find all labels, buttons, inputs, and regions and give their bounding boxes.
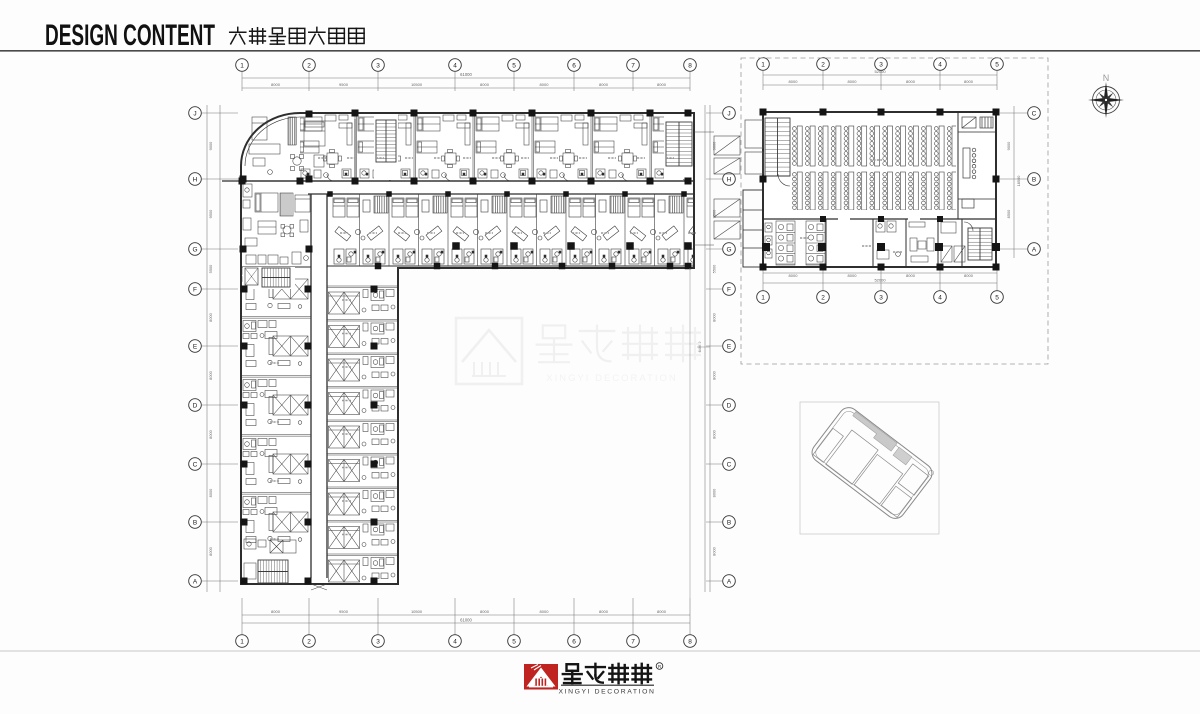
svg-text:2: 2: [821, 294, 825, 301]
svg-text:J: J: [727, 110, 730, 117]
svg-text:18500: 18500: [1016, 175, 1021, 187]
svg-text:E: E: [727, 343, 732, 350]
svg-text:8: 8: [688, 638, 692, 645]
svg-text:4: 4: [453, 62, 457, 69]
svg-text:8000: 8000: [848, 273, 858, 278]
svg-text:A: A: [1032, 246, 1037, 253]
svg-text:8000: 8000: [480, 609, 490, 614]
svg-text:3: 3: [879, 294, 883, 301]
svg-text:8000: 8000: [789, 79, 799, 84]
svg-text:E: E: [193, 343, 198, 350]
svg-text:7: 7: [631, 638, 635, 645]
svg-text:5: 5: [512, 62, 516, 69]
svg-text:4: 4: [453, 638, 457, 645]
svg-text:F: F: [727, 286, 731, 293]
svg-text:52000: 52000: [874, 69, 886, 74]
svg-text:XINGYI DECORATION: XINGYI DECORATION: [546, 373, 677, 384]
svg-text:D: D: [727, 402, 732, 409]
svg-text:8000: 8000: [712, 488, 717, 497]
svg-text:1: 1: [761, 61, 765, 68]
svg-text:8000: 8000: [712, 370, 717, 379]
svg-text:6: 6: [572, 638, 576, 645]
svg-text:52000: 52000: [874, 277, 886, 282]
svg-text:8000: 8000: [480, 82, 490, 87]
svg-text:B: B: [193, 519, 197, 526]
svg-text:3: 3: [879, 61, 883, 68]
svg-text:4: 4: [938, 294, 942, 301]
svg-text:B: B: [727, 519, 731, 526]
svg-text:6: 6: [572, 62, 576, 69]
svg-text:8000: 8000: [657, 609, 667, 614]
svg-text:8000: 8000: [540, 82, 550, 87]
svg-text:8000: 8000: [964, 79, 974, 84]
svg-text:8000: 8000: [599, 82, 609, 87]
svg-text:B: B: [1032, 176, 1036, 183]
svg-text:2: 2: [307, 638, 311, 645]
svg-text:8000: 8000: [848, 79, 858, 84]
svg-text:J: J: [193, 110, 196, 117]
svg-text:8000: 8000: [906, 79, 916, 84]
svg-text:D: D: [193, 402, 198, 409]
svg-text:C: C: [727, 461, 732, 468]
svg-text:8000: 8000: [906, 273, 916, 278]
svg-text:5: 5: [512, 638, 516, 645]
svg-text:A: A: [193, 578, 198, 585]
svg-text:C: C: [193, 461, 198, 468]
svg-text:8000: 8000: [540, 609, 550, 614]
svg-text:9500: 9500: [339, 82, 349, 87]
svg-text:H: H: [193, 176, 198, 183]
svg-text:8000: 8000: [208, 370, 213, 379]
svg-text:5: 5: [995, 294, 999, 301]
svg-text:4: 4: [938, 61, 942, 68]
svg-text:7: 7: [631, 62, 635, 69]
svg-text:8: 8: [688, 62, 692, 69]
svg-text:5500: 5500: [712, 264, 717, 273]
svg-text:2: 2: [307, 62, 311, 69]
svg-text:8000: 8000: [271, 609, 281, 614]
svg-text:8000: 8000: [208, 488, 213, 497]
svg-text:61000: 61000: [460, 618, 472, 623]
svg-text:8000: 8000: [657, 82, 667, 87]
svg-text:8000: 8000: [789, 273, 799, 278]
svg-text:8500: 8500: [1006, 209, 1011, 218]
svg-text:64000: 64000: [697, 341, 702, 353]
svg-text:XINGYI DECORATION: XINGYI DECORATION: [559, 689, 656, 696]
svg-text:3: 3: [376, 62, 380, 69]
svg-text:1: 1: [761, 294, 765, 301]
svg-text:G: G: [726, 246, 731, 253]
svg-text:9500: 9500: [339, 609, 349, 614]
svg-text:C: C: [1032, 110, 1037, 117]
svg-text:8000: 8000: [208, 546, 213, 555]
svg-text:G: G: [192, 246, 197, 253]
svg-text:8000: 8000: [712, 429, 717, 438]
svg-text:9000: 9000: [1006, 141, 1011, 150]
svg-text:2: 2: [821, 61, 825, 68]
svg-text:8000: 8000: [208, 312, 213, 321]
svg-text:8000: 8000: [599, 609, 609, 614]
svg-text:F: F: [193, 286, 197, 293]
svg-text:61000: 61000: [460, 72, 472, 77]
svg-text:8000: 8000: [271, 82, 281, 87]
svg-text:8000: 8000: [712, 312, 717, 321]
svg-text:5500: 5500: [208, 264, 213, 273]
svg-text:10500: 10500: [411, 609, 423, 614]
svg-text:N: N: [1103, 73, 1110, 83]
svg-text:5: 5: [995, 61, 999, 68]
svg-text:3: 3: [376, 638, 380, 645]
svg-text:8000: 8000: [208, 429, 213, 438]
svg-text:1: 1: [240, 62, 244, 69]
svg-text:10500: 10500: [411, 82, 423, 87]
svg-text:A: A: [727, 578, 732, 585]
svg-text:1: 1: [240, 638, 244, 645]
svg-text:9500: 9500: [208, 209, 213, 218]
svg-text:8000: 8000: [712, 546, 717, 555]
svg-text:9000: 9000: [208, 141, 213, 150]
svg-text:8000: 8000: [964, 273, 974, 278]
svg-text:DESIGN CONTENT: DESIGN CONTENT: [45, 19, 215, 52]
svg-text:H: H: [727, 176, 732, 183]
